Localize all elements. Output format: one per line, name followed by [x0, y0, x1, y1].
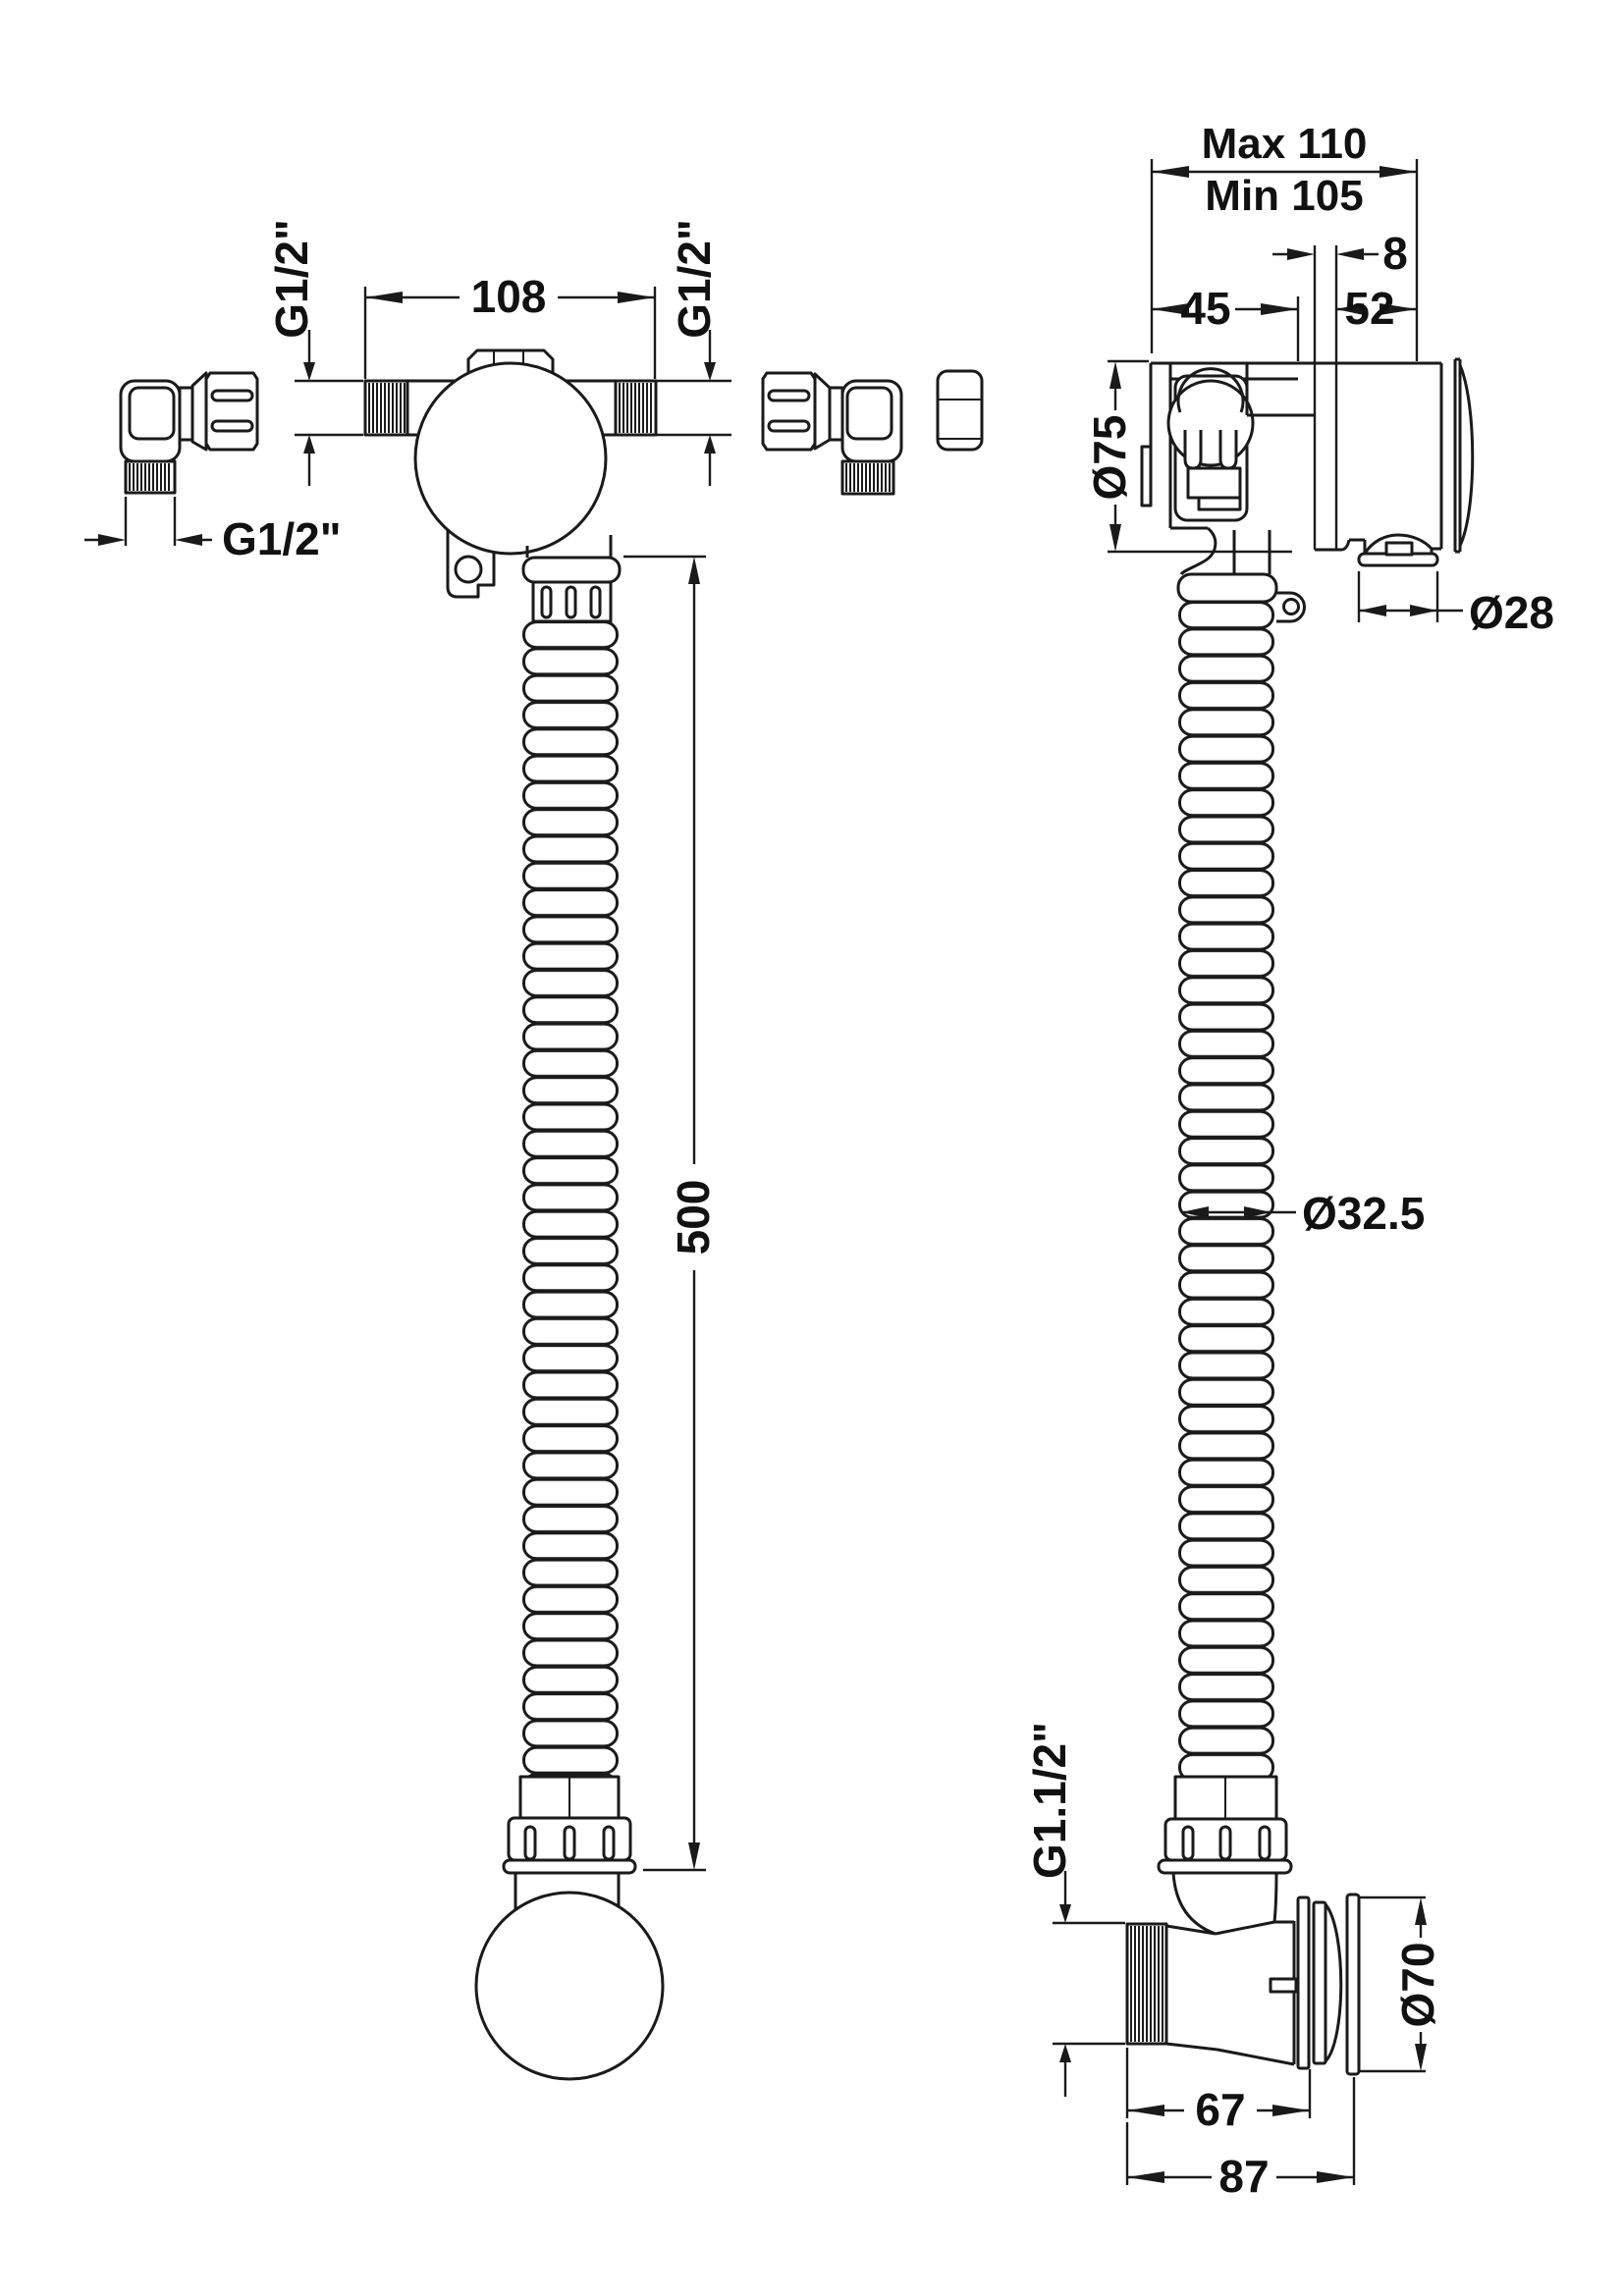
hose-collar — [1178, 574, 1276, 602]
overflow-nut — [509, 1818, 630, 1860]
label-offset-front: 45 — [1180, 283, 1230, 334]
male-thread — [842, 461, 893, 494]
label-depth-min: Min 105 — [1205, 172, 1363, 220]
label-hose-length: 500 — [668, 1180, 719, 1255]
clip-prong — [1185, 430, 1201, 468]
waste-nut-flange — [1159, 1860, 1291, 1873]
waste-nut — [1165, 1819, 1286, 1860]
technical-drawing: G1/2" G1/2" 108 — [0, 0, 1623, 2296]
cone — [192, 373, 206, 450]
overflow-cover — [476, 1893, 663, 2079]
clip-ring — [1168, 381, 1253, 465]
label-inlet-thread-left: G1/2" — [266, 219, 317, 339]
waste-thread — [1127, 1924, 1166, 2044]
inlet-thread-right — [616, 381, 656, 435]
label-elbow-thread: G1/2" — [222, 513, 342, 564]
waste-disc — [1347, 1895, 1359, 2074]
label-body-width: 108 — [471, 271, 547, 322]
hex-locknut — [938, 371, 982, 450]
label-hose-diameter: Ø32.5 — [1302, 1188, 1425, 1239]
outlet-collar — [523, 558, 620, 582]
label-waste-body-length: 67 — [1195, 2084, 1245, 2135]
flexible-hose-side — [1178, 602, 1274, 1777]
swivel-nut — [206, 373, 257, 450]
label-waste-thread: G1.1/2" — [1024, 1722, 1075, 1879]
label-inlet-thread-right: G1/2" — [669, 219, 720, 339]
label-plate-thickness: 8 — [1382, 228, 1408, 279]
bracket-tab — [1142, 447, 1151, 506]
label-offset-rear: 52 — [1344, 283, 1394, 334]
mounting-hole — [456, 557, 481, 582]
label-flange-diameter: Ø70 — [1392, 1943, 1443, 2028]
inlet-thread-left — [365, 381, 407, 435]
canvas — [0, 0, 1623, 2296]
overflow-flange — [504, 1860, 635, 1873]
label-depth-max: Max 110 — [1202, 120, 1368, 168]
swivel-nut — [763, 373, 815, 450]
male-thread — [126, 461, 175, 493]
label-body-diameter: Ø75 — [1084, 415, 1135, 501]
eyelet-hole — [1284, 600, 1299, 614]
label-spigot-diameter: Ø28 — [1469, 587, 1554, 638]
cone — [815, 374, 830, 449]
flexible-hose-front — [522, 621, 619, 1777]
outlet-nut — [533, 582, 611, 621]
label-waste-total-length: 87 — [1218, 2151, 1269, 2202]
clip-prong — [1220, 430, 1236, 468]
valve-housing — [415, 363, 606, 554]
